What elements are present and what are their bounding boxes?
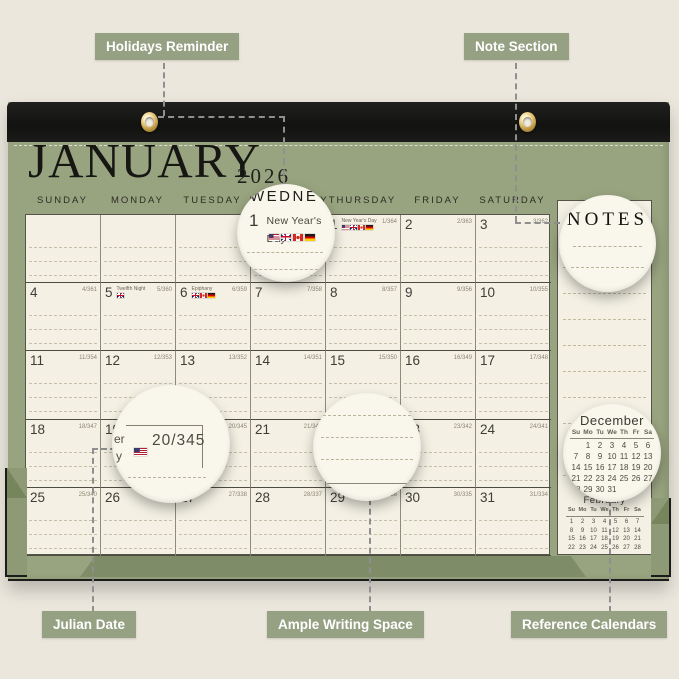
weekday-header: SUNDAY [25, 195, 100, 206]
day-number: 6 [180, 286, 188, 300]
mini-weekday: Th [618, 428, 630, 437]
mini-day: 19 [630, 462, 642, 473]
day-number: 5 [105, 286, 113, 300]
writing-line [29, 275, 97, 276]
holiday-flags [269, 234, 315, 241]
writing-line [179, 383, 247, 384]
mini-calendar-header: SuMoTuWeThFrSa [560, 506, 649, 515]
writing-line [329, 329, 397, 330]
holiday-flags [342, 225, 377, 230]
writing-line [179, 247, 247, 248]
mini-day: 22 [582, 473, 594, 484]
calendar-day-cell: 6Epiphany6/359 [176, 283, 251, 351]
day-number: 31 [480, 491, 495, 505]
mini-day: 22 [566, 544, 577, 553]
julian-date: 17/348 [530, 354, 548, 362]
writing-line [404, 534, 472, 535]
connector-line [515, 222, 560, 224]
mini-day: 3 [588, 518, 599, 527]
writing-line [247, 252, 323, 253]
julian-date: 25/340 [79, 491, 97, 499]
day-number: 13 [180, 354, 195, 368]
mini-day: 16 [594, 462, 606, 473]
writing-line [179, 329, 247, 330]
writing-line [479, 520, 548, 521]
julian-date: 11/354 [79, 354, 97, 362]
us-flag-icon [342, 225, 349, 230]
holiday-flags [192, 293, 215, 298]
writing-line [254, 452, 322, 453]
writing-line [479, 261, 548, 262]
calendar-day-cell: 22/363 [401, 215, 476, 283]
mini-day: 24 [606, 473, 618, 484]
day-number: 14 [255, 354, 270, 368]
writing-line [571, 267, 644, 268]
writing-line [404, 261, 472, 262]
mini-day: 23 [577, 544, 588, 553]
writing-line [254, 383, 322, 384]
writing-line [479, 329, 548, 330]
connector-line [283, 116, 285, 186]
writing-line [479, 548, 548, 549]
mini-day: 20 [621, 535, 632, 544]
december-mini-calendar: DecemberSuMoTuWeThFrSa123456789101112131… [563, 413, 661, 495]
mini-day: 14 [632, 527, 643, 536]
mini-day: 13 [642, 451, 654, 462]
callout-ample-writing-space: Ample Writing Space [267, 611, 424, 638]
de-flag-icon [208, 293, 215, 298]
writing-line [479, 480, 548, 481]
writing-line [404, 315, 472, 316]
day-number: 18 [30, 423, 45, 437]
julian-date: 7/358 [307, 286, 322, 294]
writing-line [321, 437, 413, 438]
mini-day: 13 [621, 527, 632, 536]
day-number: 7 [255, 286, 263, 300]
connector-line [515, 63, 517, 222]
mini-calendar-week: 123456 [563, 440, 661, 451]
connector-line [609, 500, 611, 612]
mini-calendar-title: December [563, 413, 661, 428]
de-flag-icon [305, 234, 315, 241]
mini-day: 1 [582, 440, 594, 451]
calendar-day-cell: 2828/337 [251, 488, 326, 556]
writing-line [29, 329, 97, 330]
magnifier-note-section: NOTES [559, 195, 656, 292]
julian-date: 23/342 [454, 423, 472, 431]
writing-line [254, 315, 322, 316]
writing-line [29, 548, 97, 549]
writing-line [29, 397, 97, 398]
mini-day: 7 [632, 518, 643, 527]
writing-line [329, 275, 397, 276]
writing-line [573, 246, 642, 247]
mini-day: 23 [594, 473, 606, 484]
writing-line [104, 329, 172, 330]
mini-day: 21 [632, 535, 643, 544]
writing-line [479, 315, 548, 316]
writing-line [563, 319, 646, 320]
writing-line [329, 247, 397, 248]
mini-calendar-week: 15161718192021 [560, 535, 649, 544]
writing-line [29, 480, 97, 481]
callout-julian-date: Julian Date [42, 611, 136, 638]
writing-line [104, 383, 172, 384]
mini-weekday: Mo [577, 506, 588, 515]
calendar-day-cell: 5Twelfth Night5/360 [101, 283, 176, 351]
calendar-day-cell: 1010/355 [476, 283, 551, 351]
day-number: 15 [330, 354, 345, 368]
ca-flag-icon [358, 225, 365, 230]
writing-line [29, 466, 97, 467]
writing-line [179, 534, 247, 535]
calendar-day-cell: 3131/334 [476, 488, 551, 556]
mini-weekday: Tu [594, 428, 606, 437]
product-infographic: Holidays Reminder Note Section JANUARY 2… [0, 0, 679, 679]
julian-date: 1/364 [382, 218, 397, 226]
mini-day: 27 [642, 473, 654, 484]
writing-line [563, 345, 646, 346]
calendar-day-cell: 33/362 [476, 215, 551, 283]
writing-line [404, 329, 472, 330]
julian-date: 28/337 [304, 491, 322, 499]
mini-day: 27 [621, 544, 632, 553]
mini-day: 12 [610, 527, 621, 536]
writing-line [104, 261, 172, 262]
calendar-day-cell: 1414/351 [251, 351, 326, 419]
mini-day: 24 [588, 544, 599, 553]
mini-day: 19 [610, 535, 621, 544]
writing-line [179, 315, 247, 316]
connector-line [158, 116, 285, 118]
day-number: 2 [405, 218, 413, 232]
day-number: 16 [405, 354, 420, 368]
holiday-name: New Year's Day [342, 218, 377, 224]
julian-date: 14/351 [304, 354, 322, 362]
writing-line [104, 534, 172, 535]
writing-line [249, 269, 323, 270]
corner-protector-left [5, 468, 27, 577]
day-number: 26 [105, 491, 120, 505]
uk-flag-icon [117, 293, 124, 298]
calendar-day-cell: 2525/340 [26, 488, 101, 556]
pad-bottom-shade [80, 556, 586, 577]
callout-holidays-reminder: Holidays Reminder [95, 33, 239, 60]
notes-title: NOTES [559, 209, 656, 231]
mini-day: 26 [630, 473, 642, 484]
mini-day: 30 [594, 484, 606, 495]
mini-day [618, 484, 630, 495]
writing-line [104, 343, 172, 344]
julian-date: 6/359 [232, 286, 247, 294]
mini-day: 20 [642, 462, 654, 473]
writing-line [563, 371, 646, 372]
mini-day: 9 [594, 451, 606, 462]
mini-calendar-rule [566, 516, 644, 517]
calendar-day-cell: 1New Year's Day1/364 [326, 215, 401, 283]
day-number: 28 [255, 491, 270, 505]
mini-weekday: Mo [582, 428, 594, 437]
writing-line [29, 520, 97, 521]
writing-line [179, 520, 247, 521]
day-number: 17 [480, 354, 495, 368]
holiday-flags [117, 293, 146, 298]
weekday-header: SATURDAY [475, 195, 550, 206]
writing-line [329, 261, 397, 262]
calendar-day-cell: 3030/335 [401, 488, 476, 556]
mini-weekday: Fr [621, 506, 632, 515]
mini-calendar-week: 891011121314 [560, 527, 649, 536]
ca-flag-icon [200, 293, 207, 298]
connector-line [92, 448, 94, 612]
mini-day: 28 [570, 484, 582, 495]
julian-date: 10/355 [530, 286, 548, 294]
writing-line [254, 480, 322, 481]
writing-line [254, 534, 322, 535]
mini-weekday: Sa [632, 506, 643, 515]
mini-day: 8 [566, 527, 577, 536]
mini-day: 10 [606, 451, 618, 462]
connector-line [163, 63, 165, 116]
mini-day: 14 [570, 462, 582, 473]
mini-day: 6 [621, 518, 632, 527]
writing-line [29, 247, 97, 248]
magnifier-holidays-reminder: WEDNE 1 New Year's Day [237, 184, 335, 282]
julian-date: 31/334 [530, 491, 548, 499]
magnifier-ample-writing-space [313, 393, 421, 501]
calendar-day-cell [26, 215, 101, 283]
day-number: 4 [30, 286, 38, 300]
mini-calendar-week: 22232425262728 [560, 544, 649, 553]
day-number: 30 [405, 491, 420, 505]
mini-calendar-week: 1234567 [560, 518, 649, 527]
mini-day: 10 [588, 527, 599, 536]
julian-date: 15/350 [379, 354, 397, 362]
cell-border-line [313, 483, 421, 484]
magnified-day-number: 1 [249, 212, 258, 230]
julian-date: 12/353 [154, 354, 172, 362]
grommet-icon [519, 112, 536, 132]
julian-date: 5/360 [157, 286, 172, 294]
julian-date: 13/352 [229, 354, 247, 362]
weekday-header: TUESDAY [175, 195, 250, 206]
writing-line [29, 343, 97, 344]
writing-line [29, 261, 97, 262]
calendar-day-cell: 99/356 [401, 283, 476, 351]
callout-note-section: Note Section [464, 33, 569, 60]
writing-line [329, 548, 397, 549]
mini-calendar-week: 78910111213 [563, 451, 661, 462]
mini-weekday: Su [566, 506, 577, 515]
writing-line [404, 383, 472, 384]
weekday-header: FRIDAY [400, 195, 475, 206]
magnifier-julian-date: er y 20/345 [112, 385, 230, 503]
desk-calendar-pad: JANUARY 2026 SUNDAYMONDAYTUESDAYWEDNESDA… [8, 102, 669, 581]
us-flag-icon [269, 234, 279, 241]
julian-date: 16/349 [454, 354, 472, 362]
holiday-text-fragment: er [114, 432, 125, 446]
julian-date: 2/363 [457, 218, 472, 226]
calendar-day-cell: 77/358 [251, 283, 326, 351]
day-number: 25 [30, 491, 45, 505]
holiday-text-fragment: y [116, 449, 122, 463]
writing-line [479, 247, 548, 248]
holiday-name: Epiphany [192, 286, 215, 292]
writing-line [254, 329, 322, 330]
mini-day: 15 [566, 535, 577, 544]
julian-date: 24/341 [530, 423, 548, 431]
writing-line [479, 275, 548, 276]
magnified-holiday-name: New Year's Day [266, 212, 335, 248]
mini-day: 17 [588, 535, 599, 544]
writing-line [563, 293, 646, 294]
writing-line [329, 383, 397, 384]
holiday-info: New Year's Day [342, 218, 377, 230]
writing-line [104, 548, 172, 549]
writing-line [254, 548, 322, 549]
callout-reference-calendars: Reference Calendars [511, 611, 667, 638]
writing-line [179, 548, 247, 549]
mini-day: 1 [566, 518, 577, 527]
weekday-fragment: WEDNE [250, 188, 318, 205]
mini-day: 4 [618, 440, 630, 451]
mini-day [570, 440, 582, 451]
mini-day: 17 [606, 462, 618, 473]
mini-day: 3 [606, 440, 618, 451]
writing-line [404, 343, 472, 344]
writing-line [404, 397, 472, 398]
mini-day: 5 [630, 440, 642, 451]
julian-date: 9/356 [457, 286, 472, 294]
day-number: 10 [480, 286, 495, 300]
holiday-name: Twelfth Night [117, 286, 146, 292]
writing-line [479, 397, 548, 398]
mini-day: 25 [618, 473, 630, 484]
calendar-day-cell: 88/357 [326, 283, 401, 351]
writing-line [104, 315, 172, 316]
calendar-day-cell: 1111/354 [26, 351, 101, 419]
writing-line [179, 261, 247, 262]
mini-day: 12 [630, 451, 642, 462]
day-number: 12 [105, 354, 120, 368]
mini-day: 2 [594, 440, 606, 451]
de-flag-icon [366, 225, 373, 230]
magnified-julian-value: 20/345 [152, 432, 205, 450]
writing-line [479, 466, 548, 467]
julian-date: 30/335 [454, 491, 472, 499]
writing-line [329, 520, 397, 521]
day-number: 21 [255, 423, 270, 437]
writing-line [29, 383, 97, 384]
holiday-info: Twelfth Night [117, 286, 146, 298]
writing-line [329, 315, 397, 316]
mini-weekday: We [606, 428, 618, 437]
mini-day: 11 [618, 451, 630, 462]
calendar-day-cell: 2424/341 [476, 420, 551, 488]
writing-line [479, 411, 548, 412]
mini-weekday: Tu [588, 506, 599, 515]
mini-day [630, 484, 642, 495]
writing-line [104, 247, 172, 248]
month-title: JANUARY [28, 136, 261, 185]
us-flag-icon [134, 448, 147, 456]
writing-line [404, 520, 472, 521]
weekday-header: THURSDAY [325, 195, 400, 206]
mini-day: 15 [582, 462, 594, 473]
writing-line [29, 452, 97, 453]
uk-flag-icon [281, 234, 291, 241]
writing-line [323, 415, 411, 416]
mini-day: 8 [582, 451, 594, 462]
julian-date: 4/361 [82, 286, 97, 294]
writing-line [563, 397, 646, 398]
calendar-day-cell: 1616/349 [401, 351, 476, 419]
mini-day: 26 [610, 544, 621, 553]
writing-line [29, 315, 97, 316]
mini-day: 5 [610, 518, 621, 527]
mini-day: 16 [577, 535, 588, 544]
february-mini-calendar: FebruarySuMoTuWeThFrSa123456789101112131… [560, 495, 649, 552]
weekday-header: MONDAY [100, 195, 175, 206]
calendar-day-cell: 1818/347 [26, 420, 101, 488]
calendar-day-cell: 44/361 [26, 283, 101, 351]
writing-line [254, 520, 322, 521]
magnifier-reference-calendar: DecemberSuMoTuWeThFrSa123456789101112131… [563, 404, 661, 502]
writing-line [404, 247, 472, 248]
uk-flag-icon [350, 225, 357, 230]
writing-line [329, 343, 397, 344]
writing-line [404, 548, 472, 549]
calendar-day-cell [101, 215, 176, 283]
writing-line [104, 520, 172, 521]
mini-calendar-week: 21222324252627 [563, 473, 661, 484]
mini-weekday: Fr [630, 428, 642, 437]
grommet-icon [141, 112, 158, 132]
mini-day: 18 [618, 462, 630, 473]
writing-line [254, 397, 322, 398]
day-number: 11 [30, 354, 44, 368]
julian-date: 27/338 [229, 491, 247, 499]
writing-line [254, 343, 322, 344]
mini-day: 2 [577, 518, 588, 527]
mini-calendar-week: 14151617181920 [563, 462, 661, 473]
writing-line [254, 466, 322, 467]
holiday-info: Epiphany [192, 286, 215, 298]
writing-line [29, 534, 97, 535]
mini-calendar-week: 28293031 [563, 484, 661, 495]
mini-weekday: Su [570, 428, 582, 437]
writing-line [479, 452, 548, 453]
day-number: 3 [480, 218, 488, 232]
day-number: 8 [330, 286, 338, 300]
mini-day: 31 [606, 484, 618, 495]
mini-weekday: Th [610, 506, 621, 515]
writing-line [479, 534, 548, 535]
writing-line [128, 477, 206, 478]
writing-line [329, 534, 397, 535]
connector-line [369, 499, 371, 612]
writing-line [179, 343, 247, 344]
mini-day [642, 484, 654, 495]
mini-day: 21 [570, 473, 582, 484]
writing-line [404, 411, 472, 412]
calendar-day-cell: 1717/348 [476, 351, 551, 419]
mini-day: 7 [570, 451, 582, 462]
julian-date: 20/345 [229, 423, 247, 431]
writing-line [29, 411, 97, 412]
writing-line [104, 275, 172, 276]
writing-line [254, 411, 322, 412]
